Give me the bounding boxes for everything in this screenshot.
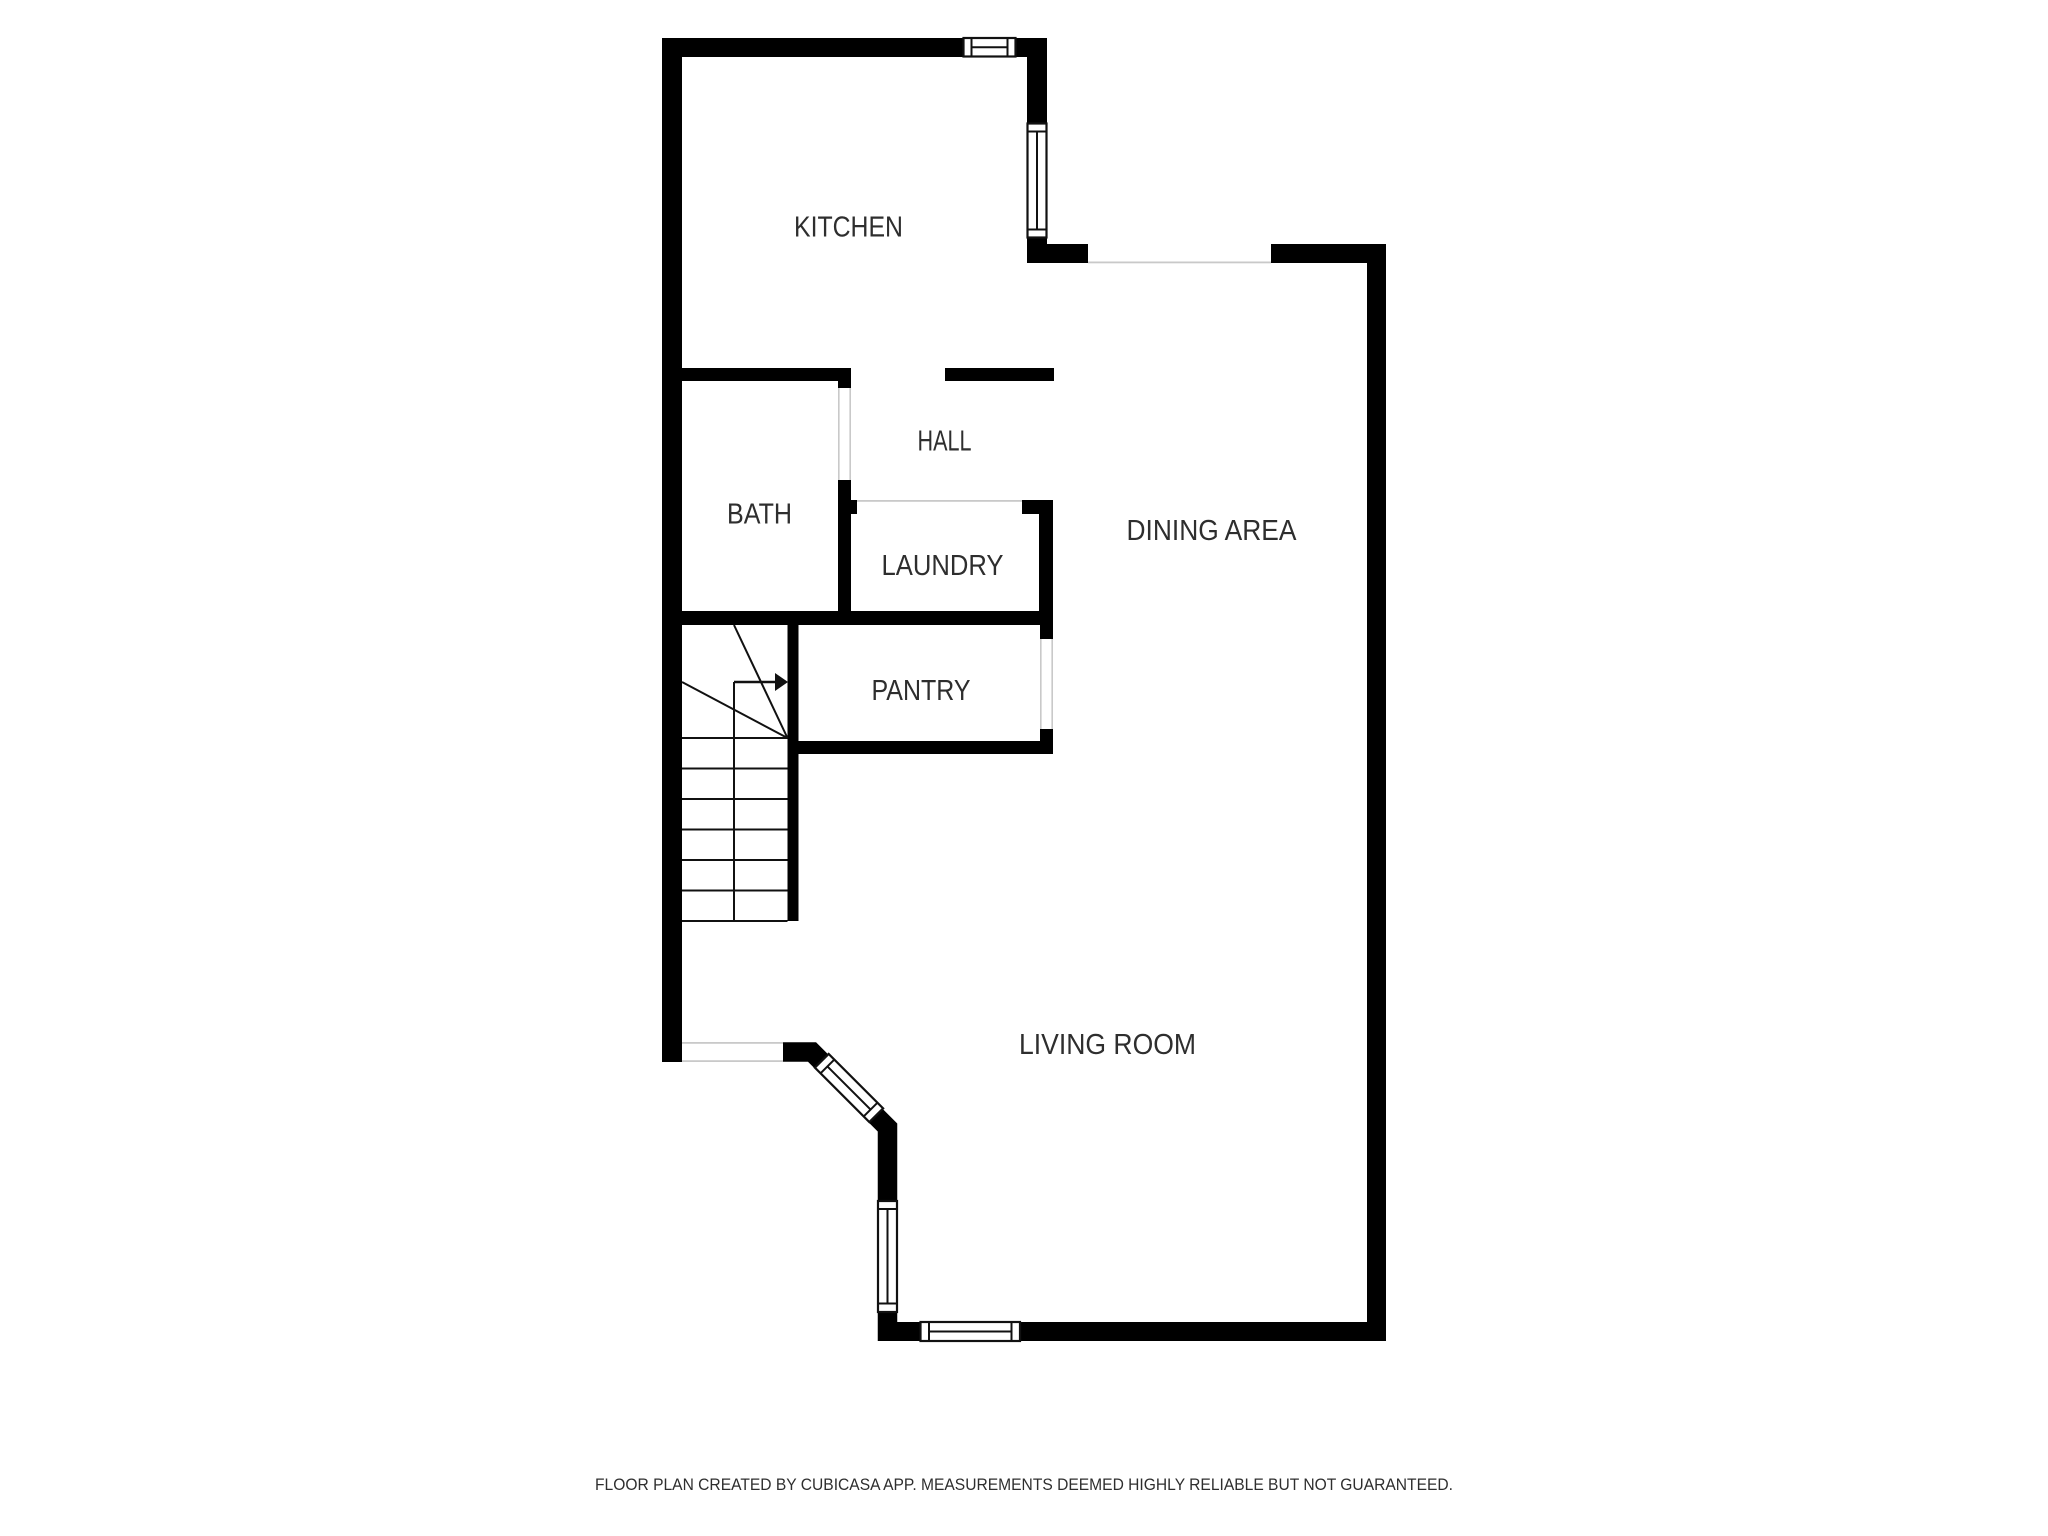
svg-text:PANTRY: PANTRY bbox=[872, 675, 971, 707]
svg-text:FLOOR PLAN CREATED BY CUBICASA: FLOOR PLAN CREATED BY CUBICASA APP. MEAS… bbox=[595, 1475, 1453, 1494]
svg-text:DINING AREA: DINING AREA bbox=[1127, 515, 1298, 547]
svg-text:KITCHEN: KITCHEN bbox=[794, 212, 903, 244]
svg-text:HALL: HALL bbox=[918, 426, 972, 458]
svg-text:LIVING ROOM: LIVING ROOM bbox=[1019, 1029, 1196, 1061]
svg-text:BATH: BATH bbox=[727, 499, 792, 531]
svg-text:LAUNDRY: LAUNDRY bbox=[882, 550, 1004, 582]
